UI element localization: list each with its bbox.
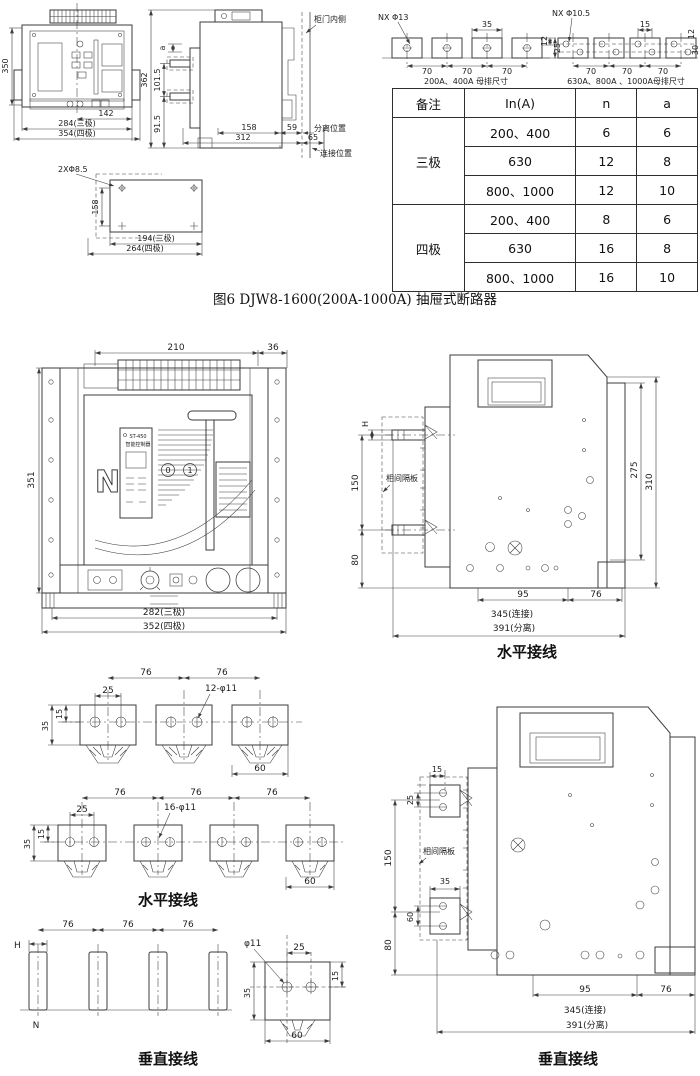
cutout-dim-264: 264(四极) xyxy=(126,243,164,253)
controller-name-label: ST-450 xyxy=(129,434,146,440)
separate-position-label: 分离位置 xyxy=(314,123,346,133)
door-cutout-drawing: 2XΦ8.5 158 194(三极) 264(四极) xyxy=(58,165,202,256)
busbar-large-dim-12: 12 xyxy=(687,29,696,39)
figure-caption: 图6 DJW8-1600(200A-1000A) 抽屉式断路器 xyxy=(120,288,590,308)
vertbars-n-label: N xyxy=(33,1021,40,1031)
busbar4p-dim-15: 15 xyxy=(37,829,46,839)
dim-345-connect: 345(连接) xyxy=(491,608,533,620)
busbar-large-holes-label: NX Φ10.5 xyxy=(552,9,590,18)
busbar-large-dim-15: 15 xyxy=(640,20,650,29)
busbar-large-dim-30: 30 xyxy=(691,45,700,55)
pad-dim-35: 35 xyxy=(243,988,252,998)
neutral-pole-letter: N xyxy=(95,465,120,500)
dim-275: 275 xyxy=(630,461,640,478)
busbar-small-dim-12: 12 xyxy=(540,36,549,46)
interphase-barrier-label: 相间隔板 xyxy=(386,473,418,483)
controller-sub-label: 智能控制器 xyxy=(125,441,150,448)
spec-header-a: a xyxy=(637,89,698,118)
dim-a: a xyxy=(158,45,167,50)
dim-95: 95 xyxy=(517,590,528,600)
pad-dim-15: 15 xyxy=(331,971,340,981)
botside-dim-60: 60 xyxy=(406,912,415,922)
cell: 200、400 xyxy=(464,205,576,234)
dim-36: 36 xyxy=(267,343,279,353)
button-on-label: 1 xyxy=(187,466,192,475)
dim-284-3pole: 284(三极) xyxy=(58,118,96,128)
side-view-vertical-drawing: 相间隔板 15 25 150 80 35 60 95 76 34 xyxy=(384,707,695,1068)
busbar3p-dim-60: 60 xyxy=(254,764,266,774)
dim-65: 65 xyxy=(308,133,318,142)
side-view-small-drawing: 柜门内侧 分离位置 连接位置 362 a 101.5 91.5 158 59 3… xyxy=(140,10,352,158)
table-row: 四极 200、400 8 6 xyxy=(393,205,698,234)
dim-59: 59 xyxy=(287,123,297,132)
busbar4p-dim-76b: 76 xyxy=(190,788,202,798)
cell: 800、1000 xyxy=(464,176,576,205)
side-view-horizontal-drawing: 相间隔板 H 150 80 275 310 95 76 345(连接) 391(… xyxy=(351,355,660,661)
busbar-large-dim-70a: 70 xyxy=(586,67,596,76)
dim-142: 142 xyxy=(98,109,113,118)
pad-hole-label: φ11 xyxy=(244,939,261,949)
busbar-small-dim-35: 35 xyxy=(482,20,492,29)
group-label-4pole: 四极 xyxy=(393,205,465,292)
front-view-small-drawing: 350 142 284(三极) 354(四极) xyxy=(1,3,140,141)
dim-H: H xyxy=(361,421,370,427)
busbar-small-dim-70c: 70 xyxy=(502,67,512,76)
drawing-sheet: 350 142 284(三极) 354(四极) 2XΦ8.5 158 194(三… xyxy=(0,0,700,1076)
dim-front-height: 350 xyxy=(1,58,10,73)
botside-dim-35: 35 xyxy=(440,877,450,886)
cell: 630 xyxy=(464,234,576,263)
busbar-small-holes-label: NX Φ13 xyxy=(378,13,408,22)
door-inside-label: 柜门内侧 xyxy=(314,14,346,24)
busbar-4pole-drawing: 76 76 76 25 16-φ11 35 15 60 水平接线 xyxy=(23,788,344,909)
botside-dim-80: 80 xyxy=(384,939,394,951)
dim-282-3pole: 282(三极) xyxy=(143,606,185,618)
connect-position-label: 连接位置 xyxy=(320,148,352,158)
dim-76: 76 xyxy=(590,590,602,600)
busbar-small-dim-70b: 70 xyxy=(462,67,472,76)
busbar-large-dim-70b: 70 xyxy=(622,67,632,76)
cell: 6 xyxy=(637,118,698,147)
dim-158: 158 xyxy=(241,123,256,132)
front-view-large-drawing: 210 36 N ST-450 智能控制器 0 1 xyxy=(27,343,287,634)
busbar4p-dim-60: 60 xyxy=(304,877,316,887)
vertical-wiring-caption-right: 垂直接线 xyxy=(538,1050,598,1068)
busbar-small-dim-70a: 70 xyxy=(422,67,432,76)
busbar4p-dim-25: 25 xyxy=(76,805,87,815)
pad-dim-60: 60 xyxy=(291,1031,303,1041)
dim-352-4pole: 352(四极) xyxy=(143,620,185,632)
pad-dim-25: 25 xyxy=(293,943,304,953)
cell: 12 xyxy=(576,176,637,205)
cell: 8 xyxy=(637,147,698,176)
horizontal-wiring-caption-busbar: 水平接线 xyxy=(138,891,198,909)
vertical-wiring-caption-left: 垂直接线 xyxy=(138,1050,198,1068)
dim-91-5: 91.5 xyxy=(153,115,162,133)
spec-table: 备注 In(A) n a 三极 200、400 6 6 630 12 8 800… xyxy=(392,88,698,292)
spec-header-in: In(A) xyxy=(464,89,576,118)
vertical-bars-drawing: H 76 76 76 N 垂直接线 xyxy=(14,920,232,1068)
cutout-hole-label: 2XΦ8.5 xyxy=(58,165,88,174)
cutout-dim-h: 158 xyxy=(91,199,100,214)
spec-header-n: n xyxy=(576,89,637,118)
cell: 10 xyxy=(637,176,698,205)
dim-310: 310 xyxy=(645,473,655,490)
busbar3p-dim-35: 35 xyxy=(41,721,50,731)
botside-dim-391-separate: 391(分离) xyxy=(566,1019,608,1031)
vertbars-dim-76c: 76 xyxy=(182,920,194,930)
button-off-label: 0 xyxy=(165,466,170,475)
pad-detail-drawing: φ11 25 15 35 60 xyxy=(243,935,346,1045)
spec-header-remark: 备注 xyxy=(393,89,465,118)
busbar4p-dim-76c: 76 xyxy=(266,788,278,798)
cutout-dim-194: 194(三极) xyxy=(137,233,175,243)
cell: 12 xyxy=(576,147,637,176)
dim-362: 362 xyxy=(140,72,149,87)
busbar3p-dim-25: 25 xyxy=(102,686,113,696)
busbar3p-dim-76a: 76 xyxy=(140,668,152,678)
busbar-small-caption: 200A、400A 母排尺寸 xyxy=(424,76,508,86)
busbar4p-dim-35: 35 xyxy=(23,839,32,849)
cell: 200、400 xyxy=(464,118,576,147)
busbar4p-dim-76a: 76 xyxy=(114,788,126,798)
interphase-barrier-label-vertical: 相间隔板 xyxy=(423,846,455,856)
dim-150: 150 xyxy=(351,474,361,491)
botside-dim-15: 15 xyxy=(432,765,442,774)
dim-210: 210 xyxy=(167,343,184,353)
busbar-200-400-drawing: NX Φ13 35 70 70 70 12 25 200A、400A 母排尺寸 xyxy=(378,13,562,86)
cell: 6 xyxy=(576,118,637,147)
busbar-630-1000-drawing: NX Φ10.5 15 70 70 70 12 30 630A、800A 、10… xyxy=(552,9,700,86)
group-label-3pole: 三极 xyxy=(393,118,465,205)
busbar-3pole-drawing: 76 76 25 12-φ11 35 15 60 xyxy=(41,668,302,777)
vertbars-dim-76b: 76 xyxy=(122,920,134,930)
busbar3p-dim-76b: 76 xyxy=(216,668,228,678)
botside-dim-95: 95 xyxy=(579,985,590,995)
dim-80: 80 xyxy=(351,554,361,566)
dim-312: 312 xyxy=(235,133,250,142)
cell: 630 xyxy=(464,147,576,176)
busbar-large-caption: 630A、800A 、1000A母排尺寸 xyxy=(567,76,685,86)
spec-header-row: 备注 In(A) n a xyxy=(393,89,698,118)
busbar4p-holes-label: 16-φ11 xyxy=(164,803,196,813)
dim-101-5: 101.5 xyxy=(153,69,162,92)
cell: 8 xyxy=(637,234,698,263)
table-row: 三极 200、400 6 6 xyxy=(393,118,698,147)
busbar-large-dim-70c: 70 xyxy=(658,67,668,76)
cell: 10 xyxy=(637,263,698,292)
cell: 6 xyxy=(637,205,698,234)
botside-dim-345-connect: 345(连接) xyxy=(564,1004,606,1016)
dim-351: 351 xyxy=(27,471,37,488)
botside-dim-76: 76 xyxy=(660,985,672,995)
busbar3p-dim-15: 15 xyxy=(55,709,64,719)
vertbars-dim-H: H xyxy=(14,941,21,951)
botside-dim-150: 150 xyxy=(384,849,394,866)
horizontal-wiring-caption-side: 水平接线 xyxy=(497,643,557,661)
cell: 8 xyxy=(576,205,637,234)
busbar3p-holes-label: 12-φ11 xyxy=(205,684,237,694)
dim-391-separate: 391(分离) xyxy=(493,622,535,634)
dim-354-4pole: 354(四极) xyxy=(58,128,96,138)
cell: 16 xyxy=(576,234,637,263)
vertbars-dim-76a: 76 xyxy=(62,920,74,930)
